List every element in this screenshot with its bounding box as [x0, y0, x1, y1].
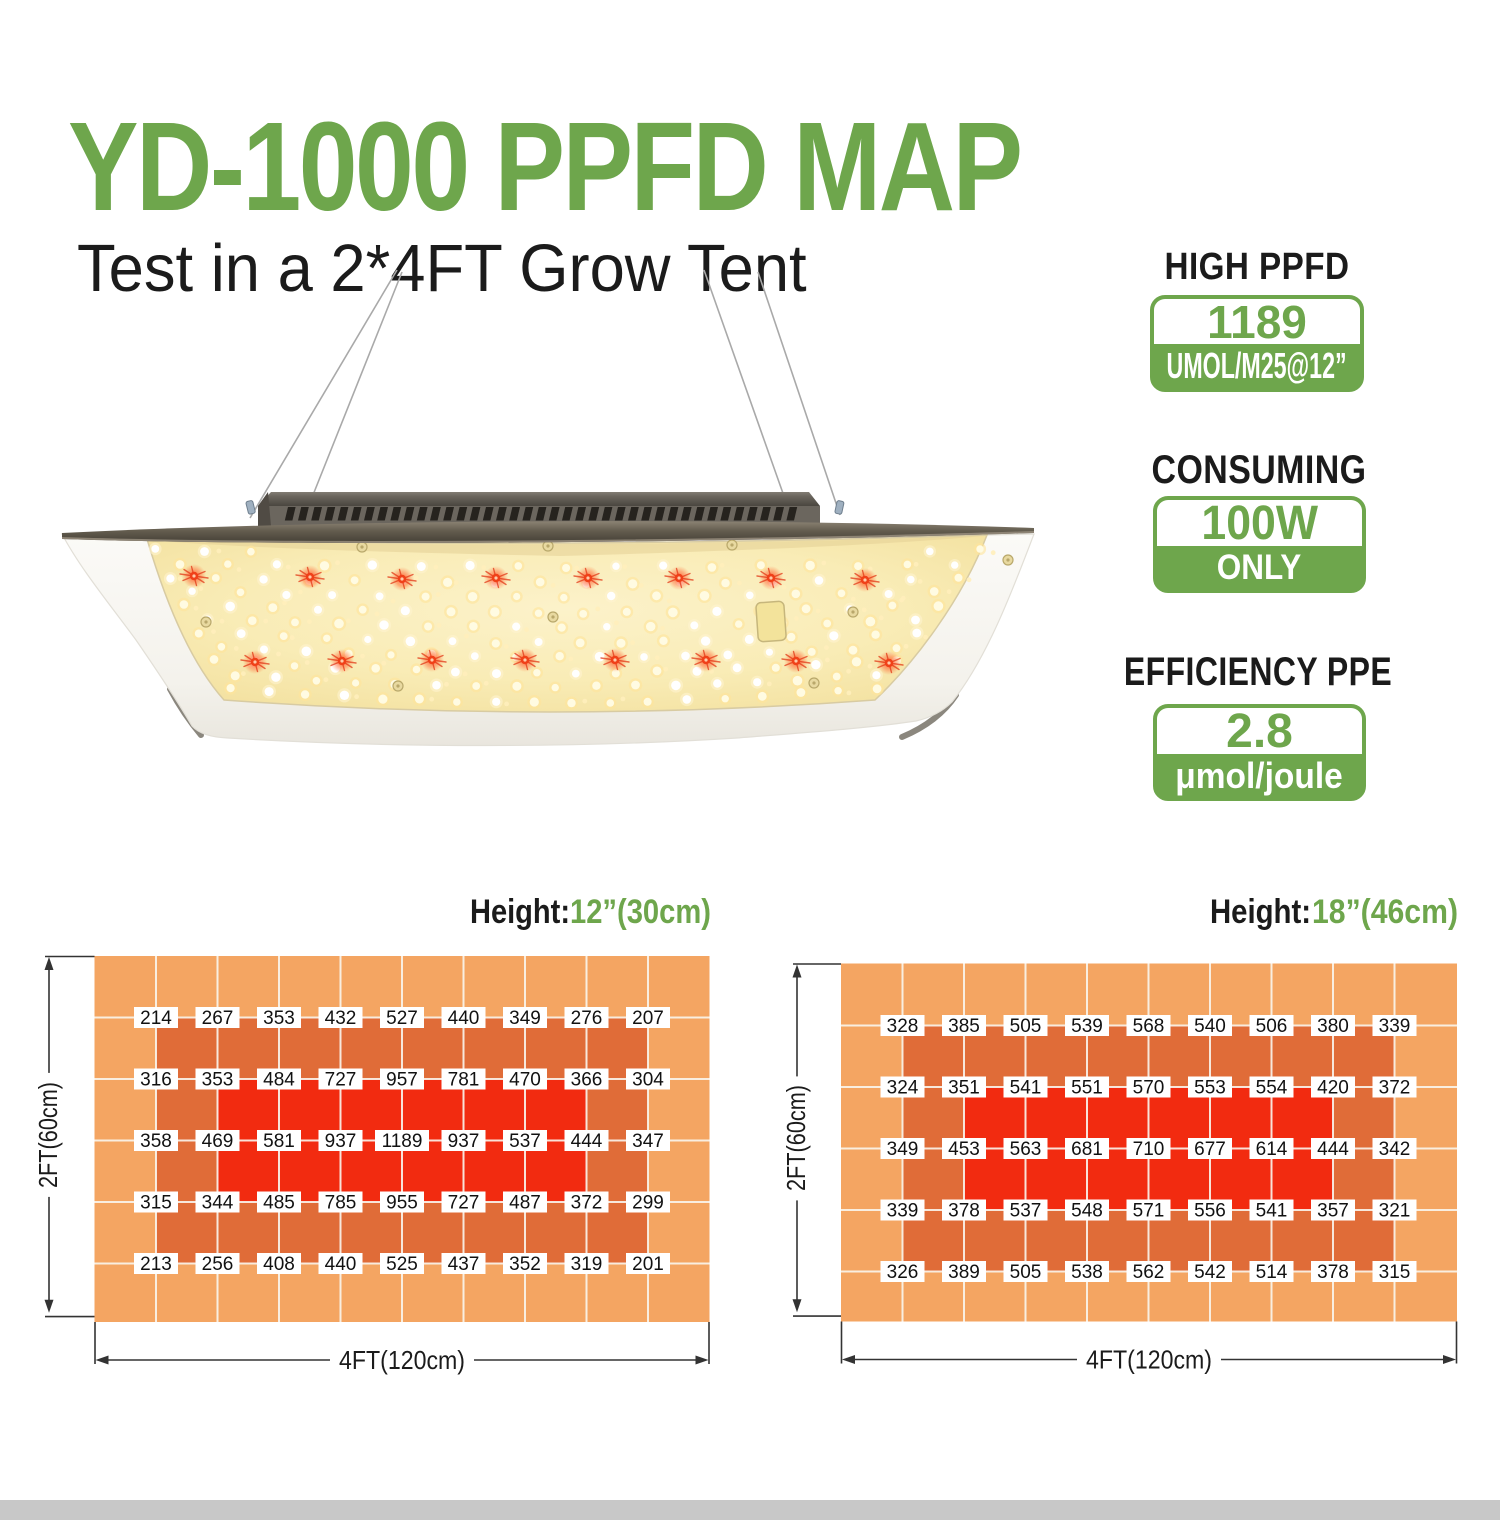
svg-text:485: 485 — [263, 1193, 295, 1214]
svg-text:339: 339 — [887, 1201, 919, 1222]
svg-text:727: 727 — [448, 1193, 480, 1214]
svg-text:487: 487 — [509, 1193, 541, 1214]
svg-text:484: 484 — [263, 1070, 295, 1091]
svg-text:556: 556 — [1194, 1201, 1226, 1222]
svg-text:542: 542 — [1194, 1262, 1226, 1283]
svg-text:Height:: Height: — [470, 893, 570, 931]
svg-text:527: 527 — [386, 1008, 418, 1029]
svg-text:505: 505 — [1010, 1016, 1042, 1037]
svg-text:339: 339 — [1379, 1016, 1411, 1037]
svg-text:537: 537 — [1010, 1201, 1042, 1222]
svg-text:328: 328 — [887, 1016, 919, 1037]
svg-text:1189: 1189 — [382, 1131, 423, 1152]
svg-text:349: 349 — [509, 1008, 541, 1029]
svg-text:781: 781 — [448, 1070, 480, 1091]
svg-text:326: 326 — [887, 1262, 919, 1283]
svg-text:319: 319 — [571, 1254, 603, 1275]
svg-text:353: 353 — [202, 1070, 234, 1091]
svg-text:4FT(120cm): 4FT(120cm) — [1086, 1345, 1212, 1375]
svg-text:453: 453 — [948, 1139, 980, 1160]
svg-text:372: 372 — [571, 1193, 603, 1214]
svg-text:12”(30cm): 12”(30cm) — [570, 893, 711, 931]
svg-text:539: 539 — [1071, 1016, 1103, 1037]
svg-text:214: 214 — [140, 1008, 172, 1029]
svg-text:444: 444 — [1317, 1139, 1349, 1160]
svg-text:2FT(60cm): 2FT(60cm) — [33, 1082, 63, 1188]
svg-text:554: 554 — [1256, 1078, 1288, 1099]
svg-text:563: 563 — [1010, 1139, 1042, 1160]
svg-text:525: 525 — [386, 1254, 418, 1275]
svg-text:420: 420 — [1317, 1078, 1349, 1099]
svg-text:267: 267 — [202, 1008, 234, 1029]
svg-text:581: 581 — [263, 1131, 295, 1152]
svg-text:937: 937 — [448, 1131, 480, 1152]
svg-text:957: 957 — [386, 1070, 418, 1091]
svg-text:389: 389 — [948, 1262, 980, 1283]
svg-text:207: 207 — [632, 1008, 664, 1029]
svg-text:469: 469 — [202, 1131, 234, 1152]
svg-text:321: 321 — [1379, 1201, 1411, 1222]
svg-text:324: 324 — [887, 1078, 919, 1099]
svg-text:551: 551 — [1071, 1078, 1103, 1099]
svg-text:344: 344 — [202, 1193, 234, 1214]
svg-text:432: 432 — [325, 1008, 357, 1029]
svg-text:614: 614 — [1256, 1139, 1288, 1160]
svg-text:385: 385 — [948, 1016, 980, 1037]
svg-text:18”(46cm): 18”(46cm) — [1312, 893, 1458, 931]
svg-text:342: 342 — [1379, 1139, 1411, 1160]
svg-text:955: 955 — [386, 1193, 418, 1214]
svg-text:537: 537 — [509, 1131, 541, 1152]
svg-text:571: 571 — [1133, 1201, 1165, 1222]
svg-text:514: 514 — [1256, 1262, 1288, 1283]
svg-text:541: 541 — [1256, 1201, 1288, 1222]
svg-text:440: 440 — [448, 1008, 480, 1029]
svg-text:408: 408 — [263, 1254, 295, 1275]
svg-text:727: 727 — [325, 1070, 357, 1091]
svg-text:444: 444 — [571, 1131, 603, 1152]
svg-text:315: 315 — [140, 1193, 172, 1214]
svg-text:256: 256 — [202, 1254, 234, 1275]
svg-text:213: 213 — [140, 1254, 172, 1275]
svg-text:677: 677 — [1194, 1139, 1226, 1160]
svg-text:351: 351 — [948, 1078, 980, 1099]
svg-text:2FT(60cm): 2FT(60cm) — [781, 1085, 811, 1191]
svg-text:440: 440 — [325, 1254, 357, 1275]
svg-text:681: 681 — [1071, 1139, 1103, 1160]
svg-text:Height:: Height: — [1210, 893, 1311, 931]
svg-text:470: 470 — [509, 1070, 541, 1091]
svg-text:568: 568 — [1133, 1016, 1165, 1037]
svg-text:315: 315 — [1379, 1262, 1411, 1283]
svg-text:710: 710 — [1133, 1139, 1165, 1160]
svg-text:357: 357 — [1317, 1201, 1349, 1222]
svg-text:304: 304 — [632, 1070, 664, 1091]
svg-text:316: 316 — [140, 1070, 172, 1091]
svg-text:505: 505 — [1010, 1262, 1042, 1283]
svg-text:540: 540 — [1194, 1016, 1226, 1037]
svg-text:349: 349 — [887, 1139, 919, 1160]
svg-text:506: 506 — [1256, 1016, 1288, 1037]
svg-text:570: 570 — [1133, 1078, 1165, 1099]
svg-text:538: 538 — [1071, 1262, 1103, 1283]
svg-text:358: 358 — [140, 1131, 172, 1152]
svg-text:4FT(120cm): 4FT(120cm) — [339, 1345, 465, 1375]
svg-text:366: 366 — [571, 1070, 603, 1091]
svg-text:562: 562 — [1133, 1262, 1165, 1283]
svg-text:378: 378 — [948, 1201, 980, 1222]
svg-text:937: 937 — [325, 1131, 357, 1152]
svg-text:347: 347 — [632, 1131, 664, 1152]
svg-text:353: 353 — [263, 1008, 295, 1029]
svg-text:201: 201 — [632, 1254, 664, 1275]
svg-text:378: 378 — [1317, 1262, 1349, 1283]
svg-text:352: 352 — [509, 1254, 541, 1275]
svg-text:299: 299 — [632, 1193, 664, 1214]
svg-text:437: 437 — [448, 1254, 480, 1275]
svg-text:276: 276 — [571, 1008, 603, 1029]
svg-text:380: 380 — [1317, 1016, 1349, 1037]
svg-text:372: 372 — [1379, 1078, 1411, 1099]
svg-text:553: 553 — [1194, 1078, 1226, 1099]
svg-text:548: 548 — [1071, 1201, 1103, 1222]
svg-text:541: 541 — [1010, 1078, 1042, 1099]
svg-text:785: 785 — [325, 1193, 357, 1214]
